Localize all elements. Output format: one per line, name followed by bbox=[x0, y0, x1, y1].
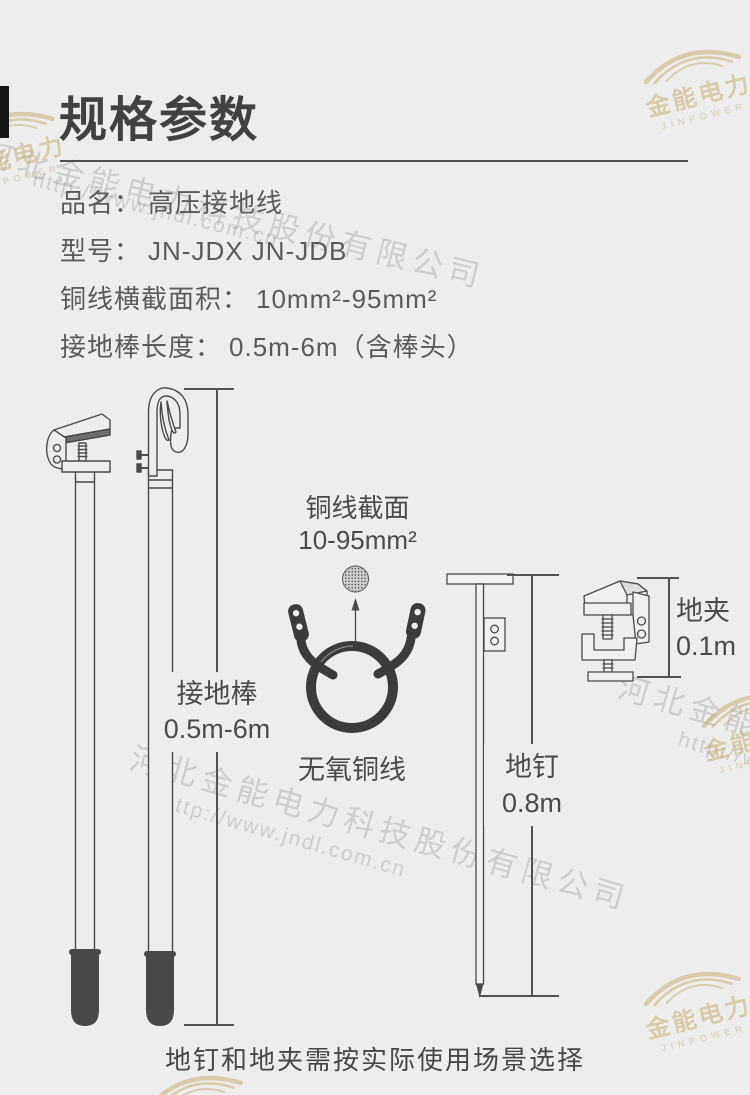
spec-value: 10mm²-95mm² bbox=[256, 282, 437, 316]
ground-clamp-illustration bbox=[578, 576, 662, 683]
spec-row-model: 型号： JN-JDX JN-JDB bbox=[60, 234, 474, 268]
title-accent-bar bbox=[0, 86, 9, 138]
copper-section-title: 铜线截面 bbox=[280, 492, 435, 524]
nail-dimension-label: 地钉 0.8m bbox=[484, 744, 580, 826]
clamp-rod-illustration bbox=[44, 406, 114, 1030]
spec-list: 品名： 高压接地线 型号： JN-JDX JN-JDB 铜线横截面积： 10mm… bbox=[60, 186, 474, 378]
clamp-dimension-line bbox=[668, 577, 670, 677]
spec-row-wire-area: 铜线横截面积： 10mm²-95mm² bbox=[60, 282, 474, 316]
coil-label: 无氧铜线 bbox=[281, 748, 423, 787]
title-divider bbox=[60, 160, 688, 162]
clamp-dimension-bottom-tick bbox=[637, 676, 681, 678]
copper-section-range: 10-95mm² bbox=[280, 524, 435, 556]
spec-value: 高压接地线 bbox=[148, 186, 283, 220]
copper-coil-illustration bbox=[283, 598, 431, 748]
spec-value: JN-JDX JN-JDB bbox=[148, 234, 347, 268]
spec-label: 接地棒长度： bbox=[60, 330, 222, 364]
spec-label: 品名： bbox=[60, 186, 141, 220]
rod-dimension-label: 接地棒 0.5m-6m bbox=[150, 672, 284, 752]
spec-label: 型号： bbox=[60, 234, 141, 268]
clamp-dimension-label: 地夹 0.1m bbox=[676, 594, 750, 664]
copper-section-label: 铜线截面 10-95mm² bbox=[280, 492, 435, 556]
nail-dimension-top-tick bbox=[507, 574, 559, 576]
nail-dimension-bottom-tick bbox=[479, 995, 559, 997]
watermark-logo-top-right: 金能电力 JINPOWER bbox=[627, 32, 750, 136]
rod-dimension-bottom-tick bbox=[184, 1024, 234, 1026]
usage-note: 地钉和地夹需按实际使用场景选择 bbox=[0, 1040, 750, 1077]
clamp-dimension-name: 地夹 bbox=[676, 594, 750, 629]
rod-dimension-range: 0.5m-6m bbox=[150, 712, 284, 747]
spec-row-rod-length: 接地棒长度： 0.5m-6m（含棒头） bbox=[60, 330, 474, 364]
nail-dimension-range: 0.8m bbox=[484, 785, 580, 821]
page-title: 规格参数 bbox=[59, 80, 259, 150]
rod-dimension-top-tick bbox=[184, 388, 234, 390]
spec-value: 0.5m-6m（含棒头） bbox=[229, 330, 474, 364]
nail-dimension-name: 地钉 bbox=[484, 749, 580, 785]
rod-dimension-name: 接地棒 bbox=[150, 677, 284, 712]
spec-row-product-name: 品名： 高压接地线 bbox=[60, 186, 474, 220]
product-spec-page: 河北金能电力科技股份有限公司 http://www.jndl.com.cn 河北… bbox=[0, 0, 750, 1095]
clamp-dimension-top-tick bbox=[637, 577, 679, 579]
clamp-dimension-range: 0.1m bbox=[676, 629, 750, 664]
spec-label: 铜线横截面积： bbox=[60, 282, 249, 316]
